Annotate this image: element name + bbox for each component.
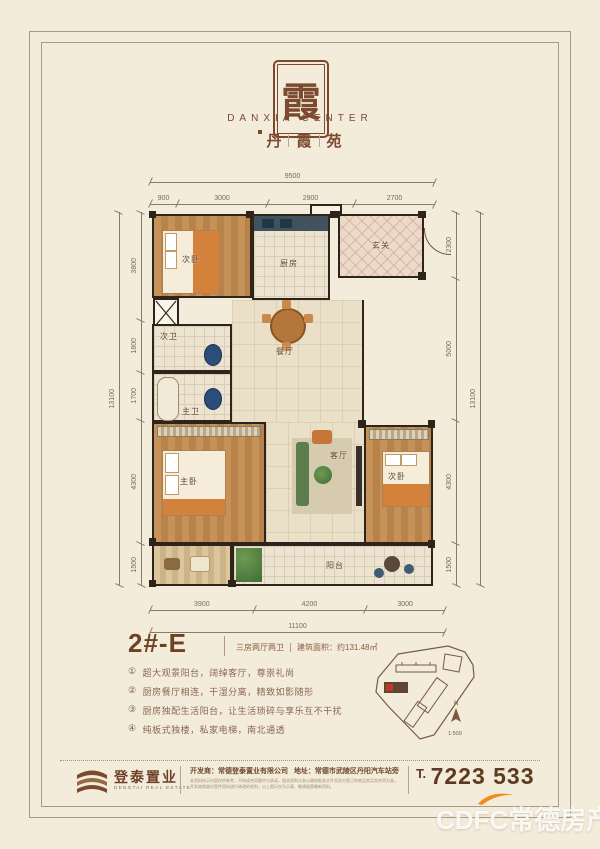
site-plan: N 1:500 — [368, 642, 488, 754]
dengtai-logo-icon — [74, 766, 110, 796]
divider — [288, 135, 289, 147]
disclaimer-line: 开发商保留对宣传资料进行修改的权利，以上图示仅为示意，敬请留意最新资料。 — [190, 784, 402, 790]
room-label: 次卧 — [388, 471, 406, 482]
wall-pier — [149, 211, 156, 218]
feature-item: ③ 厨房独配生活阳台，让生活琐碎与享乐互不干扰 — [128, 704, 342, 723]
developer-line: 开发商：常德登泰置业有限公司 地址：常德市武陵区丹阳汽车站旁 — [190, 766, 399, 776]
feature-text: 厨房餐厅相连，干湿分离，精致如影随形 — [143, 685, 314, 698]
wall-pier — [149, 580, 156, 587]
logo-cn-char: 苑 — [327, 130, 342, 151]
feature-text: 纯板式独楼，私家电梯，南北通透 — [143, 723, 286, 736]
room-label: 次卫 — [160, 331, 178, 342]
divider — [224, 636, 225, 656]
dim-bottom-total: 11100 — [150, 620, 445, 633]
wall-pier — [149, 538, 156, 546]
dim-right-total: 13100 — [468, 212, 481, 586]
developer: 开发商：常德登泰置业有限公司 — [190, 768, 288, 775]
wall-pier — [418, 272, 426, 280]
feature-list: ① 超大观景阳台，阔绰客厅，尊崇礼尚 ② 厨房餐厅相连，干湿分离，精致如影随形 … — [128, 666, 342, 742]
divider — [180, 766, 181, 794]
room-bath-second: 次卫 — [152, 324, 232, 372]
bullet-number-icon: ① — [128, 666, 137, 677]
svg-text:N: N — [454, 701, 458, 707]
north-arrow-icon: N — [451, 701, 461, 722]
wall-pier — [418, 211, 426, 218]
disclaimer: 本资料所示内容仅供参考，不构成合同要约与承诺，相关权利义务以政府批准文件及双方签… — [190, 778, 402, 790]
bullet-number-icon: ④ — [128, 723, 137, 734]
feature-item: ② 厨房餐厅相连，干湿分离，精致如影随形 — [128, 685, 342, 704]
phone-number: T. 7223 533 — [416, 763, 535, 790]
room-label: 厨房 — [280, 258, 298, 269]
divider — [319, 135, 320, 147]
bullet-number-icon: ② — [128, 685, 137, 696]
unit-code: 2#-E — [128, 628, 187, 659]
room-master-bedroom: 主卧 — [152, 422, 266, 544]
site-plan-scale: 1:500 — [448, 731, 462, 737]
wall-pier — [330, 211, 340, 218]
dim-top-total: 9500 — [150, 170, 435, 183]
footer-divider — [60, 760, 540, 761]
logo-cn-char: 霞 — [296, 130, 311, 151]
room-label: 次卧 — [182, 254, 200, 265]
feature-text: 超大观景阳台，阔绰客厅，尊崇礼尚 — [143, 666, 295, 679]
dim-bottom-segments: 3900 4200 3000 — [150, 598, 445, 611]
room-label: 玄关 — [372, 240, 390, 251]
divider — [290, 643, 291, 652]
room-label: 客厅 — [330, 450, 348, 461]
bullet-number-icon: ③ — [128, 704, 137, 715]
logo-name-cn: 丹 霞 苑 — [0, 130, 600, 151]
logo-name-en: DANXIA CENTER — [0, 113, 600, 124]
logo-square-icon — [258, 130, 262, 134]
room-bedroom-top-left: 次卧 — [152, 214, 252, 298]
room-label: 主卧 — [180, 476, 198, 487]
wall-pier — [428, 420, 435, 428]
entry-door-arc — [424, 228, 451, 255]
room-balcony: 阳台 — [232, 544, 433, 586]
address: 地址：常德市武陵区丹阳汽车站旁 — [294, 768, 399, 775]
wall-pier — [246, 211, 254, 218]
unit-spec-row: 三房两厅两卫 建筑面积：约131.48㎡ — [236, 642, 377, 653]
watermark-text: CDFC常德房产 — [436, 800, 600, 837]
divider — [408, 766, 409, 794]
dim-left-segments: 3800 1800 1700 4300 1500 — [129, 212, 142, 586]
wall-pier — [358, 420, 366, 428]
feature-item: ① 超大观景阳台，阔绰客厅，尊崇礼尚 — [128, 666, 342, 685]
phone-digits: 7223 533 — [431, 763, 535, 789]
brand-seal-icon: 霞 — [273, 60, 329, 138]
master-corner-nook — [152, 544, 232, 586]
footer-brand-cn: 登泰置业 — [114, 767, 178, 787]
dim-left-total: 13100 — [107, 212, 120, 586]
watermark-swoosh-icon — [478, 790, 516, 806]
room-label: 餐厅 — [276, 346, 294, 357]
room-kitchen: 厨房 — [252, 214, 330, 300]
unit-spec: 三房两厅两卫 — [236, 642, 284, 653]
dim-right-segments: 2300 5000 4300 1500 — [444, 212, 457, 586]
room-dining: 餐厅 — [232, 300, 364, 422]
room-label: 阳台 — [326, 560, 344, 571]
room-bath-master: 主卫 — [152, 372, 232, 422]
logo-cn-char: 丹 — [266, 130, 281, 151]
room-label: 主卫 — [182, 406, 200, 417]
wall-pier — [428, 540, 435, 548]
room-bedroom-right: 次卧 — [364, 425, 433, 544]
phone-prefix: T. — [416, 766, 426, 781]
feature-item: ④ 纯板式独楼，私家电梯，南北通透 — [128, 723, 342, 742]
unit-area: 建筑面积：约131.48㎡ — [297, 642, 377, 653]
wall-pier — [228, 580, 236, 587]
room-living: 客厅 — [266, 422, 364, 544]
dim-top-segments: 900 3000 2900 2700 — [150, 192, 435, 205]
room-foyer: 玄关 — [338, 214, 424, 278]
feature-text: 厨房独配生活阳台，让生活琐碎与享乐互不干扰 — [143, 704, 343, 717]
